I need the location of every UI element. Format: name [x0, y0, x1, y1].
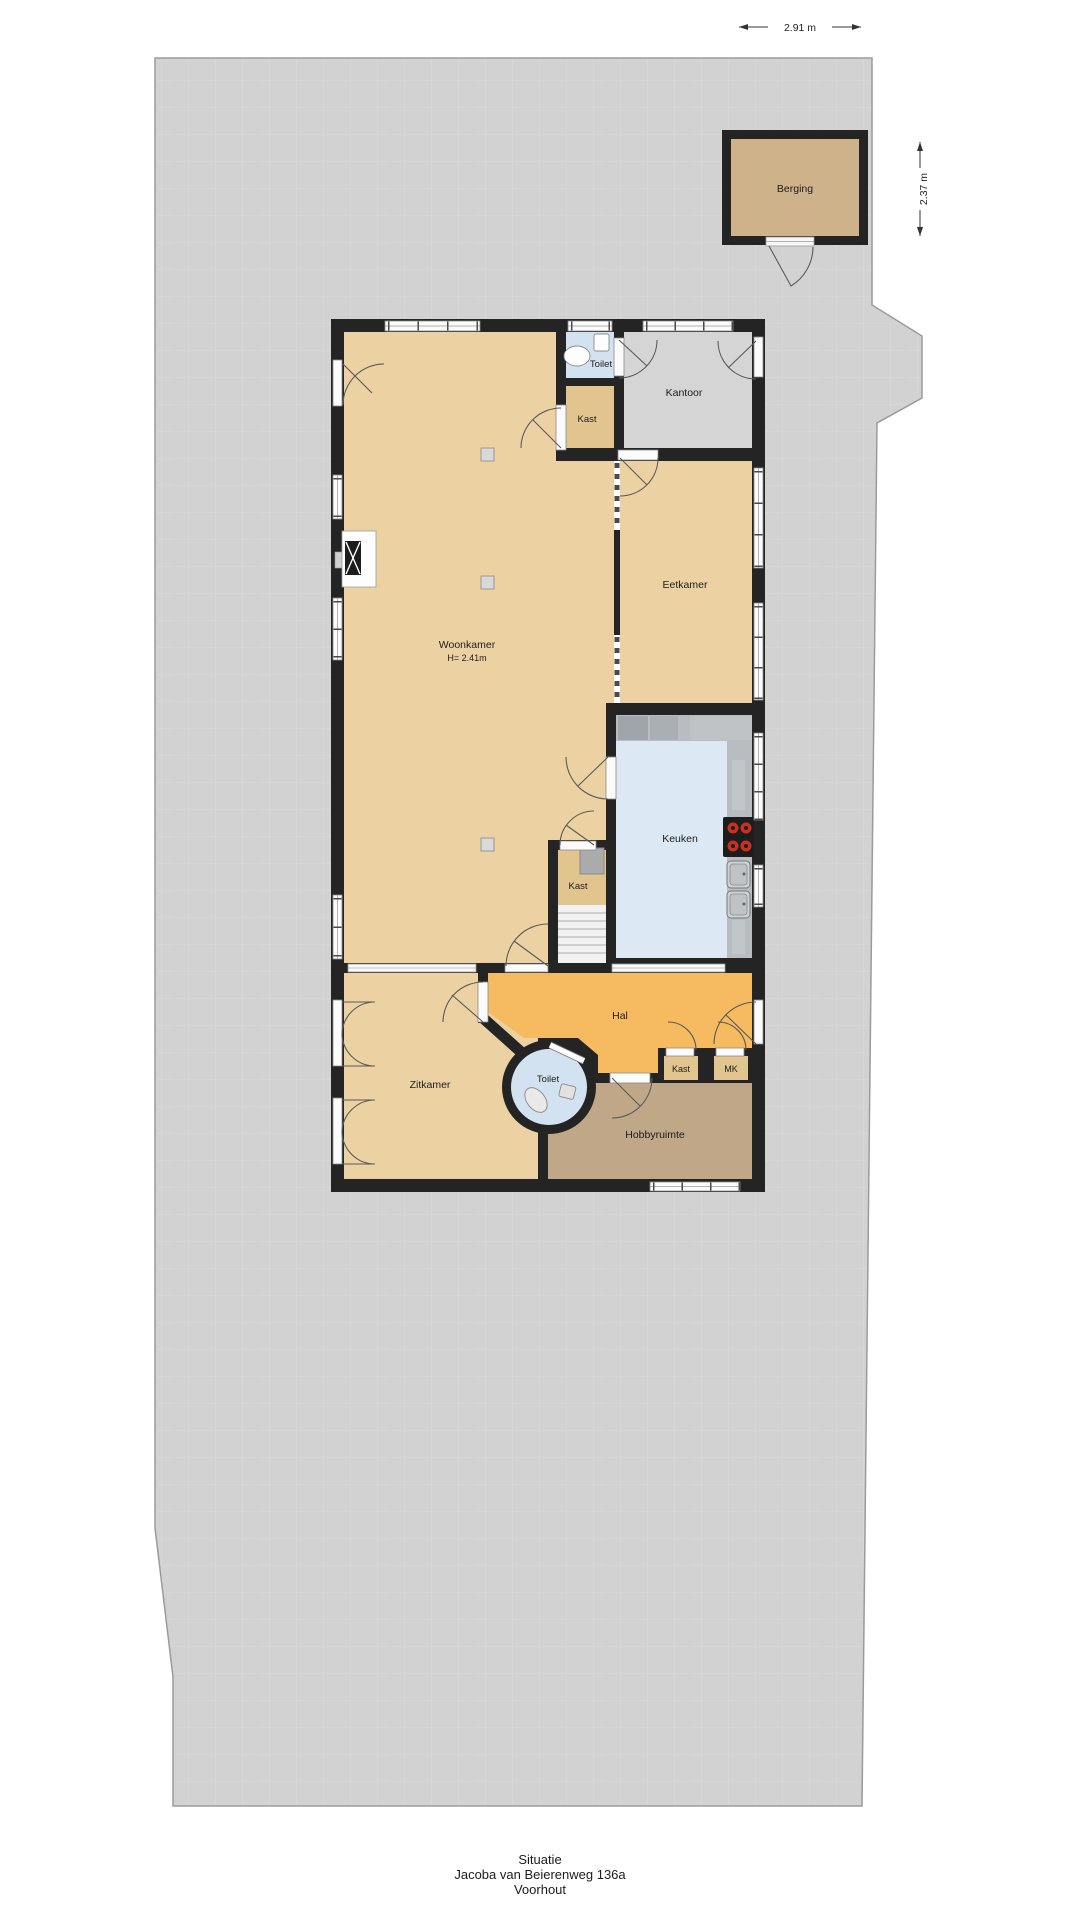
partition-hal-keuken — [612, 964, 725, 972]
label-kantoor: Kantoor — [666, 387, 703, 399]
label-hal: Hal — [612, 1010, 628, 1022]
label-toilet-bottom: Toilet — [537, 1074, 560, 1085]
window-bottom-hobby — [650, 1182, 740, 1191]
window-left-3 — [333, 895, 342, 959]
kast-mid-appliance — [580, 848, 604, 874]
dimension-top-label: 2.91 m — [784, 22, 816, 34]
label-toilet-top: Toilet — [590, 359, 613, 370]
window-right-eetkamer-2 — [754, 603, 763, 700]
floorplan-drawing: 2.91 m 2.37 m Berging — [0, 0, 1080, 1920]
label-kast-mid: Kast — [568, 881, 587, 892]
window-left-1 — [333, 475, 342, 519]
window-left-2 — [333, 598, 342, 660]
title-block: Situatie Jacoba van Beierenweg 136a Voor… — [0, 1852, 1080, 1897]
window-top-woonkamer — [385, 321, 480, 331]
label-keuken: Keuken — [662, 833, 698, 845]
plan-type: Situatie — [0, 1852, 1080, 1867]
wall-below-toilet — [538, 1126, 548, 1179]
label-kast-top: Kast — [577, 414, 596, 425]
dimension-right-label: 2.37 m — [918, 173, 930, 205]
label-mk: MK — [724, 1064, 738, 1074]
label-kast-bottom: Kast — [672, 1064, 691, 1074]
stove — [723, 817, 754, 857]
address: Jacoba van Beierenweg 136a — [0, 1867, 1080, 1882]
window-right-eetkamer-1 — [754, 468, 763, 568]
label-hobbyruimte: Hobbyruimte — [625, 1129, 685, 1141]
window-right-keuken-2 — [754, 865, 763, 907]
label-woonkamer-height: H= 2.41m — [447, 653, 486, 663]
window-right-keuken-1 — [754, 733, 763, 820]
stairs — [558, 905, 606, 963]
label-eetkamer: Eetkamer — [663, 579, 708, 591]
floorplan-page: 2.91 m 2.37 m Berging — [0, 0, 1080, 1920]
city: Voorhout — [0, 1882, 1080, 1897]
label-zitkamer: Zitkamer — [410, 1079, 451, 1091]
window-top-kantoor — [643, 321, 733, 331]
window-top-toilet — [568, 321, 612, 331]
berging-label: Berging — [777, 183, 813, 195]
label-woonkamer: Woonkamer — [439, 639, 496, 651]
partition-woonkamer-zitkamer — [348, 964, 476, 972]
